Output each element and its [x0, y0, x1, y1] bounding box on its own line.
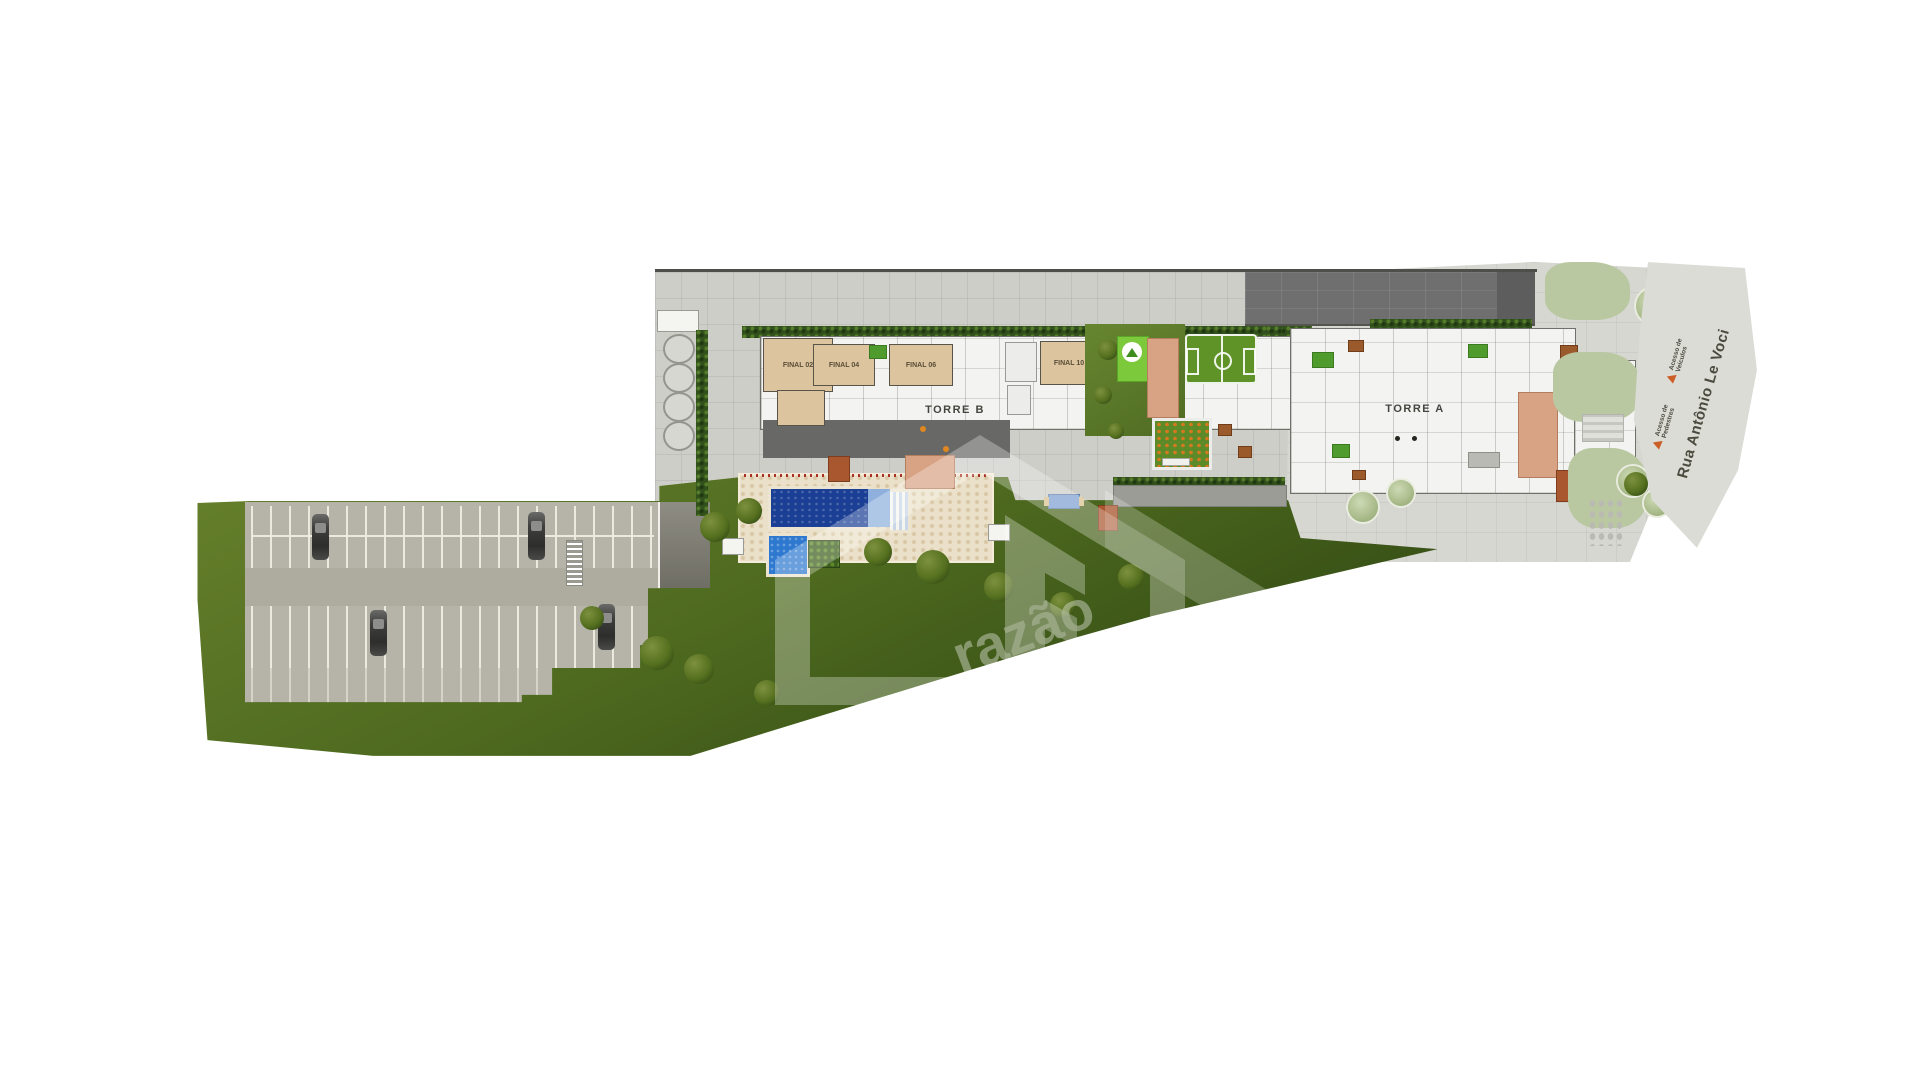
green-mat — [1312, 352, 1334, 368]
lawn-shrub — [684, 654, 714, 684]
tower-a-label: TORRE A — [1365, 403, 1465, 416]
column-dot — [1412, 436, 1417, 441]
pergola — [1005, 342, 1037, 382]
column-dot — [1395, 436, 1400, 441]
site-top-boundary — [655, 269, 1537, 272]
car-icon — [312, 514, 329, 560]
site-plan: FINAL 02 FINAL 04 FINAL 06 FINAL 10 TORR… — [0, 0, 1920, 1080]
field-goal-right — [1243, 348, 1256, 375]
watermark-house-icon-2 — [1105, 490, 1275, 695]
table — [1352, 470, 1366, 480]
lawn-shrub — [700, 512, 730, 542]
sidewalk-shrub — [1624, 472, 1648, 496]
table — [1348, 340, 1364, 352]
entry-steps — [1582, 414, 1624, 442]
access-arrow-icon — [1653, 441, 1664, 450]
playground — [1117, 336, 1149, 382]
unit-label: FINAL 06 — [906, 362, 936, 369]
gray-mat — [1468, 452, 1500, 468]
green-mat — [1332, 444, 1350, 458]
tree — [1388, 480, 1414, 506]
round-planter — [663, 334, 695, 364]
unit-label: FINAL 02 — [783, 362, 813, 369]
roof-shadow-strip — [1497, 272, 1535, 324]
unit-final-04: FINAL 04 — [813, 344, 875, 386]
round-planter — [663, 363, 695, 393]
tree — [1348, 492, 1378, 522]
deck-bench — [722, 538, 744, 555]
lawn-shrub — [580, 606, 604, 630]
round-planter — [663, 421, 695, 451]
courtyard-shrub — [1098, 340, 1118, 360]
soccer-field — [1185, 334, 1257, 384]
watermark-logo: razão — [755, 395, 1315, 725]
slide-icon — [1122, 342, 1142, 362]
car-icon — [528, 512, 545, 560]
neighbor-roof — [1245, 272, 1535, 326]
green-mat — [1468, 344, 1488, 358]
service-box — [657, 310, 699, 332]
front-garden-patch — [1545, 262, 1630, 320]
stairs-hatch — [566, 540, 583, 586]
lawn-shrub — [640, 636, 674, 670]
field-goal-left — [1186, 348, 1199, 375]
green-mat — [869, 345, 887, 359]
unit-label: FINAL 04 — [829, 362, 859, 369]
front-garden-patch — [1553, 352, 1641, 422]
slide-glyph — [1126, 348, 1138, 357]
unit-label: FINAL 10 — [1054, 360, 1084, 367]
patio-salmon — [1518, 392, 1558, 478]
paver-path — [1588, 498, 1622, 546]
car-icon — [370, 610, 387, 656]
parking-aisle — [245, 568, 660, 606]
field-center-circle — [1214, 352, 1232, 370]
hedge-left-vertical — [696, 330, 708, 516]
unit-final-06: FINAL 06 — [889, 344, 953, 386]
round-planter — [663, 392, 695, 422]
